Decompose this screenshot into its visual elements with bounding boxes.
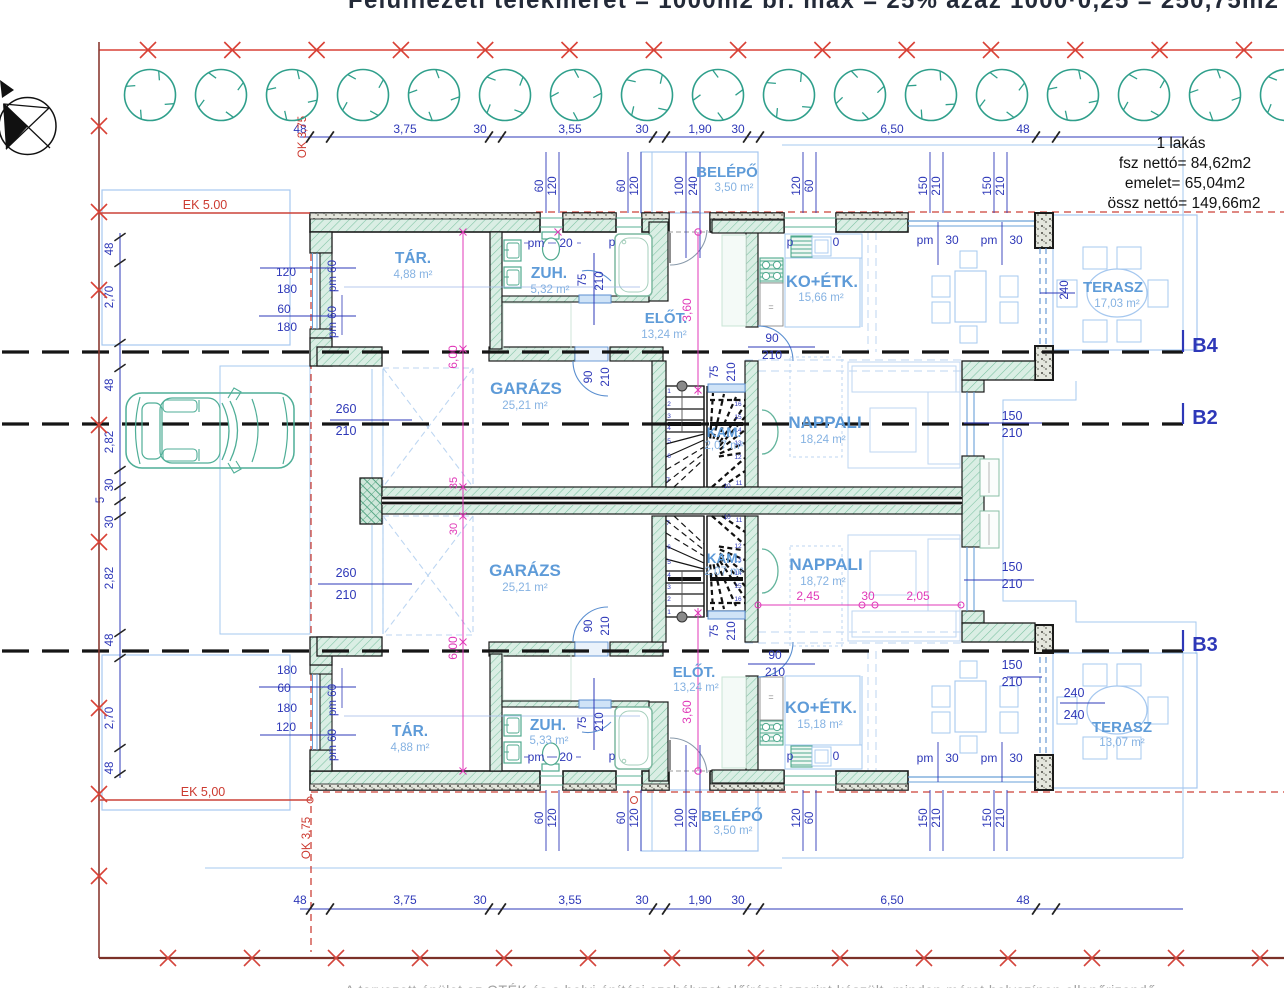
svg-text:30: 30: [861, 589, 875, 603]
svg-text:60: 60: [804, 812, 816, 825]
svg-text:2,45: 2,45: [796, 589, 820, 603]
svg-text:210: 210: [600, 367, 612, 386]
svg-text:25,21 m²: 25,21 m²: [502, 582, 548, 594]
svg-text:5,32 m²: 5,32 m²: [531, 284, 570, 296]
svg-text:B2: B2: [1192, 407, 1218, 429]
svg-text:pm 60: pm 60: [327, 260, 339, 292]
svg-text:10: 10: [723, 483, 731, 490]
svg-text:3: 3: [667, 584, 671, 591]
svg-text:120: 120: [276, 720, 296, 734]
svg-text:120: 120: [629, 176, 641, 195]
svg-text:6,50: 6,50: [880, 893, 904, 907]
svg-text:210: 210: [995, 176, 1007, 195]
svg-text:5,33 m²: 5,33 m²: [530, 735, 569, 747]
svg-text:TERASZ: TERASZ: [1083, 279, 1143, 296]
svg-text:100: 100: [674, 808, 686, 827]
svg-text:BELÉPŐ: BELÉPŐ: [696, 163, 758, 181]
svg-text:260: 260: [336, 402, 357, 416]
svg-text:30: 30: [1009, 751, 1023, 765]
svg-text:90: 90: [583, 620, 595, 633]
svg-text:75: 75: [577, 274, 589, 287]
svg-text:7: 7: [666, 477, 670, 484]
svg-text:30: 30: [635, 122, 649, 136]
svg-text:ZUH.: ZUH.: [530, 717, 566, 734]
svg-text:KO+ÉTK.: KO+ÉTK.: [785, 698, 857, 717]
svg-text:emelet= 65,04m2: emelet= 65,04m2: [1125, 175, 1245, 192]
svg-text:0: 0: [833, 235, 840, 249]
svg-text:6,00: 6,00: [446, 345, 460, 369]
svg-text:30: 30: [731, 893, 745, 907]
svg-text:2,70: 2,70: [104, 707, 116, 729]
svg-text:0: 0: [833, 749, 840, 763]
svg-text:48: 48: [1016, 122, 1030, 136]
svg-text:48: 48: [104, 762, 116, 775]
svg-text:210: 210: [336, 588, 357, 602]
svg-text:1: 1: [667, 609, 671, 616]
svg-text:1,90: 1,90: [688, 122, 712, 136]
svg-text:5: 5: [95, 497, 107, 503]
svg-text:30: 30: [104, 479, 116, 492]
svg-text:pm: pm: [981, 233, 998, 247]
svg-text:30: 30: [731, 122, 745, 136]
svg-text:7: 7: [666, 520, 670, 527]
svg-text:KAM.: KAM.: [707, 551, 742, 566]
svg-text:B4: B4: [1192, 335, 1218, 357]
svg-text:pm 60: pm 60: [327, 306, 339, 338]
svg-text:NAPPALI: NAPPALI: [788, 413, 861, 432]
svg-text:p: p: [787, 235, 794, 249]
svg-text:30: 30: [473, 893, 487, 907]
svg-text:240: 240: [1064, 686, 1085, 700]
svg-text:GARÁZS: GARÁZS: [489, 561, 561, 580]
svg-text:4,88 m²: 4,88 m²: [394, 269, 433, 281]
svg-text:3,55: 3,55: [558, 893, 582, 907]
svg-text:2,07 m²: 2,07 m²: [705, 566, 744, 578]
svg-text:2,05: 2,05: [906, 589, 930, 603]
svg-text:12: 12: [734, 454, 742, 461]
svg-text:=: =: [768, 692, 773, 702]
svg-text:90: 90: [583, 371, 595, 384]
svg-text:210: 210: [594, 712, 606, 731]
svg-text:5: 5: [667, 559, 671, 566]
svg-text:3,55: 3,55: [558, 122, 582, 136]
svg-text:210: 210: [1002, 577, 1023, 591]
svg-text:180: 180: [277, 701, 297, 715]
svg-text:össz nettó= 149,66m2: össz nettó= 149,66m2: [1108, 195, 1261, 212]
svg-text:48: 48: [104, 634, 116, 647]
svg-text:150: 150: [1002, 409, 1023, 423]
svg-text:150: 150: [1002, 560, 1023, 574]
svg-text:13,24 m²: 13,24 m²: [641, 329, 687, 341]
svg-text:2: 2: [667, 596, 671, 603]
svg-text:pm: pm: [981, 751, 998, 765]
svg-text:p: p: [787, 749, 794, 763]
svg-text:210: 210: [762, 348, 782, 362]
svg-text:KO+ÉTK.: KO+ÉTK.: [786, 272, 858, 291]
svg-text:60: 60: [616, 812, 628, 825]
svg-text:210: 210: [931, 176, 943, 195]
svg-text:ZUH.: ZUH.: [531, 265, 567, 282]
svg-text:pm: pm: [917, 233, 934, 247]
svg-text:3,50 m²: 3,50 m²: [715, 182, 754, 194]
svg-text:3,50 m²: 3,50 m²: [714, 825, 753, 837]
svg-text:210: 210: [600, 616, 612, 635]
svg-text:3: 3: [667, 413, 671, 420]
svg-text:60: 60: [804, 180, 816, 193]
svg-text:210: 210: [1002, 426, 1023, 440]
svg-text:6: 6: [667, 453, 671, 460]
svg-text:15,18 m²: 15,18 m²: [797, 719, 843, 731]
svg-text:4: 4: [667, 425, 671, 432]
svg-text:11: 11: [736, 517, 743, 524]
svg-text:150: 150: [982, 808, 994, 827]
svg-text:6,50: 6,50: [880, 122, 904, 136]
svg-text:4,88 m²: 4,88 m²: [391, 742, 430, 754]
svg-text:15,66 m²: 15,66 m²: [798, 292, 844, 304]
svg-text:90: 90: [768, 648, 782, 662]
svg-text:18,24 m²: 18,24 m²: [800, 434, 846, 446]
svg-text:GARÁZS: GARÁZS: [490, 379, 562, 398]
svg-text:30: 30: [448, 523, 460, 535]
svg-text:=: =: [768, 302, 773, 312]
svg-text:BELÉPŐ: BELÉPŐ: [701, 807, 763, 825]
svg-text:17,03 m²: 17,03 m²: [1094, 298, 1140, 310]
svg-text:90: 90: [765, 331, 779, 345]
svg-text:180: 180: [277, 663, 297, 677]
svg-text:3,75: 3,75: [393, 122, 417, 136]
svg-text:pm 60: pm 60: [327, 684, 339, 716]
svg-text:60: 60: [534, 812, 546, 825]
svg-text:48: 48: [1016, 893, 1030, 907]
svg-text:Felülnézeti telekméret = 1000m: Felülnézeti telekméret = 1000m2 br. max …: [348, 0, 1278, 14]
svg-text:TÁR.: TÁR.: [395, 250, 431, 267]
svg-text:OK 3,75: OK 3,75: [297, 116, 309, 158]
svg-text:20: 20: [559, 750, 573, 764]
svg-text:15: 15: [734, 583, 742, 590]
svg-text:20: 20: [559, 236, 573, 250]
svg-text:ELŐT.: ELŐT.: [673, 663, 716, 681]
svg-text:B3: B3: [1192, 634, 1218, 656]
svg-text:pm: pm: [528, 750, 545, 764]
svg-text:60: 60: [616, 180, 628, 193]
svg-text:13,24 m²: 13,24 m²: [673, 682, 719, 694]
svg-text:2: 2: [667, 401, 671, 408]
svg-text:180: 180: [277, 320, 297, 334]
svg-text:1: 1: [667, 388, 671, 395]
svg-text:120: 120: [547, 176, 559, 195]
svg-text:25,21 m²: 25,21 m²: [502, 400, 548, 412]
svg-text:260: 260: [336, 566, 357, 580]
svg-text:210: 210: [931, 808, 943, 827]
svg-text:4: 4: [667, 572, 671, 579]
svg-text:ELŐT.: ELŐT.: [645, 309, 688, 327]
svg-text:120: 120: [547, 808, 559, 827]
svg-text:3,60: 3,60: [680, 700, 694, 724]
svg-text:30: 30: [945, 751, 959, 765]
svg-text:EK 5,00: EK 5,00: [181, 785, 226, 799]
svg-text:240: 240: [1059, 280, 1071, 299]
svg-text:A tervezett épület az OTÉK és: A tervezett épület az OTÉK és a helyi ép…: [345, 982, 1155, 988]
svg-text:180: 180: [277, 282, 297, 296]
svg-text:210: 210: [594, 271, 606, 290]
svg-text:pm: pm: [917, 751, 934, 765]
svg-text:210: 210: [765, 665, 785, 679]
svg-text:fsz nettó= 84,62m2: fsz nettó= 84,62m2: [1119, 155, 1251, 172]
svg-text:15: 15: [734, 414, 742, 421]
svg-text:pm 60: pm 60: [327, 729, 339, 761]
svg-text:120: 120: [276, 265, 296, 279]
svg-text:210: 210: [726, 621, 738, 640]
svg-text:75: 75: [709, 625, 721, 638]
svg-text:2,82: 2,82: [104, 567, 116, 589]
svg-text:TÁR.: TÁR.: [392, 723, 428, 740]
svg-text:12: 12: [734, 543, 742, 550]
svg-text:6,00: 6,00: [446, 636, 460, 660]
svg-text:35: 35: [448, 477, 460, 489]
svg-text:150: 150: [982, 176, 994, 195]
svg-text:48: 48: [293, 893, 307, 907]
svg-text:p: p: [609, 235, 616, 249]
svg-text:30: 30: [104, 516, 116, 529]
svg-text:2,07 m²: 2,07 m²: [705, 440, 744, 452]
svg-text:60: 60: [277, 302, 291, 316]
svg-text:150: 150: [918, 176, 930, 195]
svg-text:120: 120: [629, 808, 641, 827]
svg-text:150: 150: [1002, 658, 1023, 672]
svg-text:16: 16: [734, 596, 742, 603]
svg-text:210: 210: [995, 808, 1007, 827]
svg-text:240: 240: [688, 808, 700, 827]
svg-text:KAM.: KAM.: [707, 425, 742, 440]
svg-text:p: p: [609, 749, 616, 763]
svg-text:48: 48: [104, 243, 116, 256]
svg-text:240: 240: [1064, 708, 1085, 722]
svg-text:3,75: 3,75: [393, 893, 417, 907]
svg-text:75: 75: [577, 717, 589, 730]
svg-text:150: 150: [918, 808, 930, 827]
svg-text:16: 16: [734, 401, 742, 408]
svg-text:120: 120: [791, 176, 803, 195]
svg-text:EK 5.00: EK 5.00: [183, 198, 228, 212]
svg-text:TERASZ: TERASZ: [1092, 719, 1152, 736]
svg-text:2,82: 2,82: [104, 431, 116, 453]
svg-text:NAPPALI: NAPPALI: [789, 555, 862, 574]
svg-text:75: 75: [709, 366, 721, 379]
svg-text:60: 60: [277, 681, 291, 695]
svg-text:1 lakás: 1 lakás: [1156, 135, 1205, 152]
svg-text:60: 60: [534, 180, 546, 193]
svg-text:13,07 m²: 13,07 m²: [1099, 737, 1145, 749]
svg-text:pm: pm: [528, 236, 545, 250]
svg-text:30: 30: [473, 122, 487, 136]
svg-text:30: 30: [1009, 233, 1023, 247]
svg-text:1,90: 1,90: [688, 893, 712, 907]
svg-text:11: 11: [736, 480, 743, 487]
svg-text:10: 10: [723, 514, 731, 521]
svg-text:6: 6: [667, 544, 671, 551]
svg-text:5: 5: [667, 438, 671, 445]
svg-text:120: 120: [791, 808, 803, 827]
svg-text:210: 210: [336, 424, 357, 438]
svg-text:100: 100: [674, 176, 686, 195]
svg-text:OK 3,75: OK 3,75: [301, 817, 313, 859]
svg-text:30: 30: [635, 893, 649, 907]
svg-text:18,72 m²: 18,72 m²: [800, 576, 846, 588]
svg-text:48: 48: [104, 379, 116, 392]
svg-text:30: 30: [945, 233, 959, 247]
svg-text:210: 210: [726, 362, 738, 381]
